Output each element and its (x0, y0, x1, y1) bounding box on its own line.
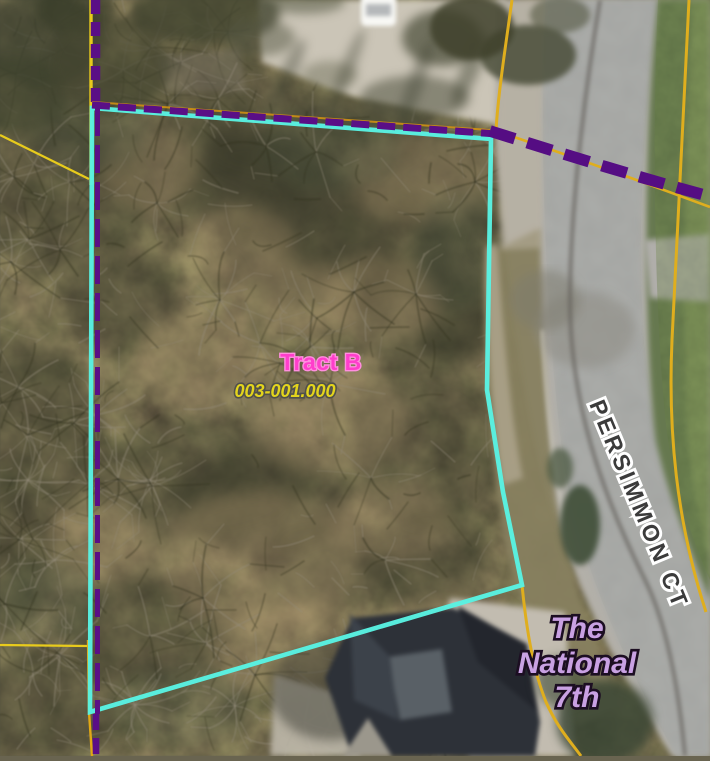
svg-text:The: The (550, 612, 603, 645)
svg-text:National: National (518, 647, 637, 680)
svg-text:003-001.000: 003-001.000 (234, 381, 335, 401)
svg-text:Tract B: Tract B (280, 349, 361, 375)
svg-text:7th: 7th (555, 681, 600, 714)
